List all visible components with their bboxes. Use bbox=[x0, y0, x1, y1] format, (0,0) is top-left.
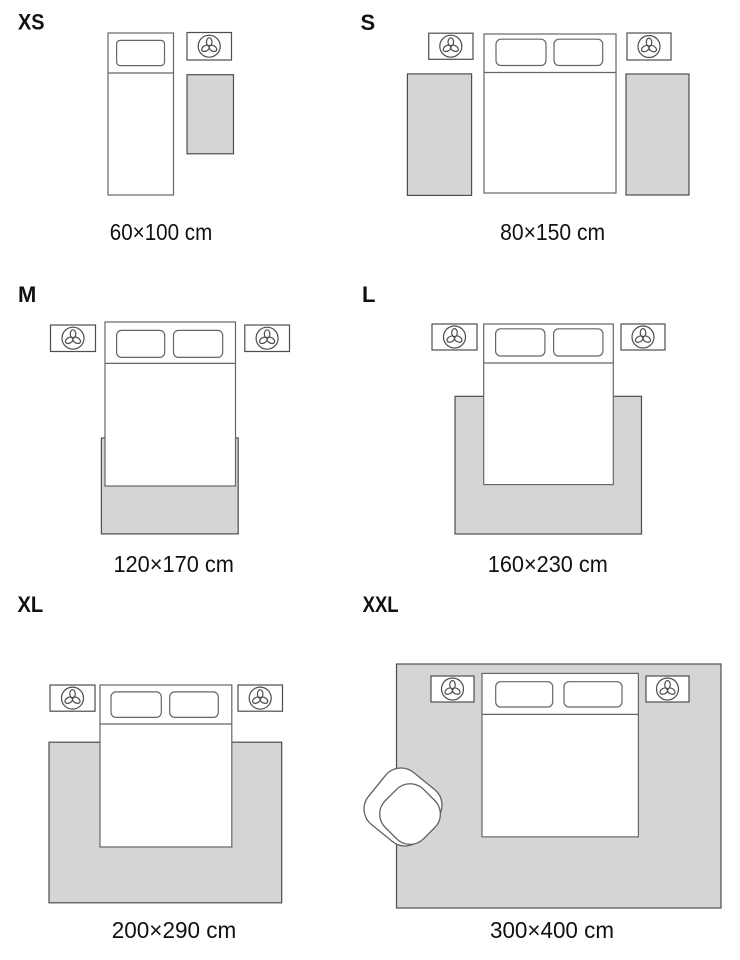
svg-text:M: M bbox=[18, 282, 36, 307]
svg-text:S: S bbox=[361, 10, 376, 35]
svg-text:120×170 cm: 120×170 cm bbox=[113, 551, 234, 577]
svg-text:XS: XS bbox=[18, 10, 45, 35]
svg-text:160×230 cm: 160×230 cm bbox=[488, 551, 608, 577]
svg-text:XL: XL bbox=[18, 592, 44, 617]
svg-text:60×100 cm: 60×100 cm bbox=[110, 219, 213, 245]
svg-text:L: L bbox=[362, 282, 375, 307]
svg-text:80×150 cm: 80×150 cm bbox=[500, 219, 605, 245]
svg-text:200×290 cm: 200×290 cm bbox=[112, 917, 237, 943]
svg-text:300×400 cm: 300×400 cm bbox=[490, 917, 614, 943]
svg-text:XXL: XXL bbox=[363, 592, 399, 617]
